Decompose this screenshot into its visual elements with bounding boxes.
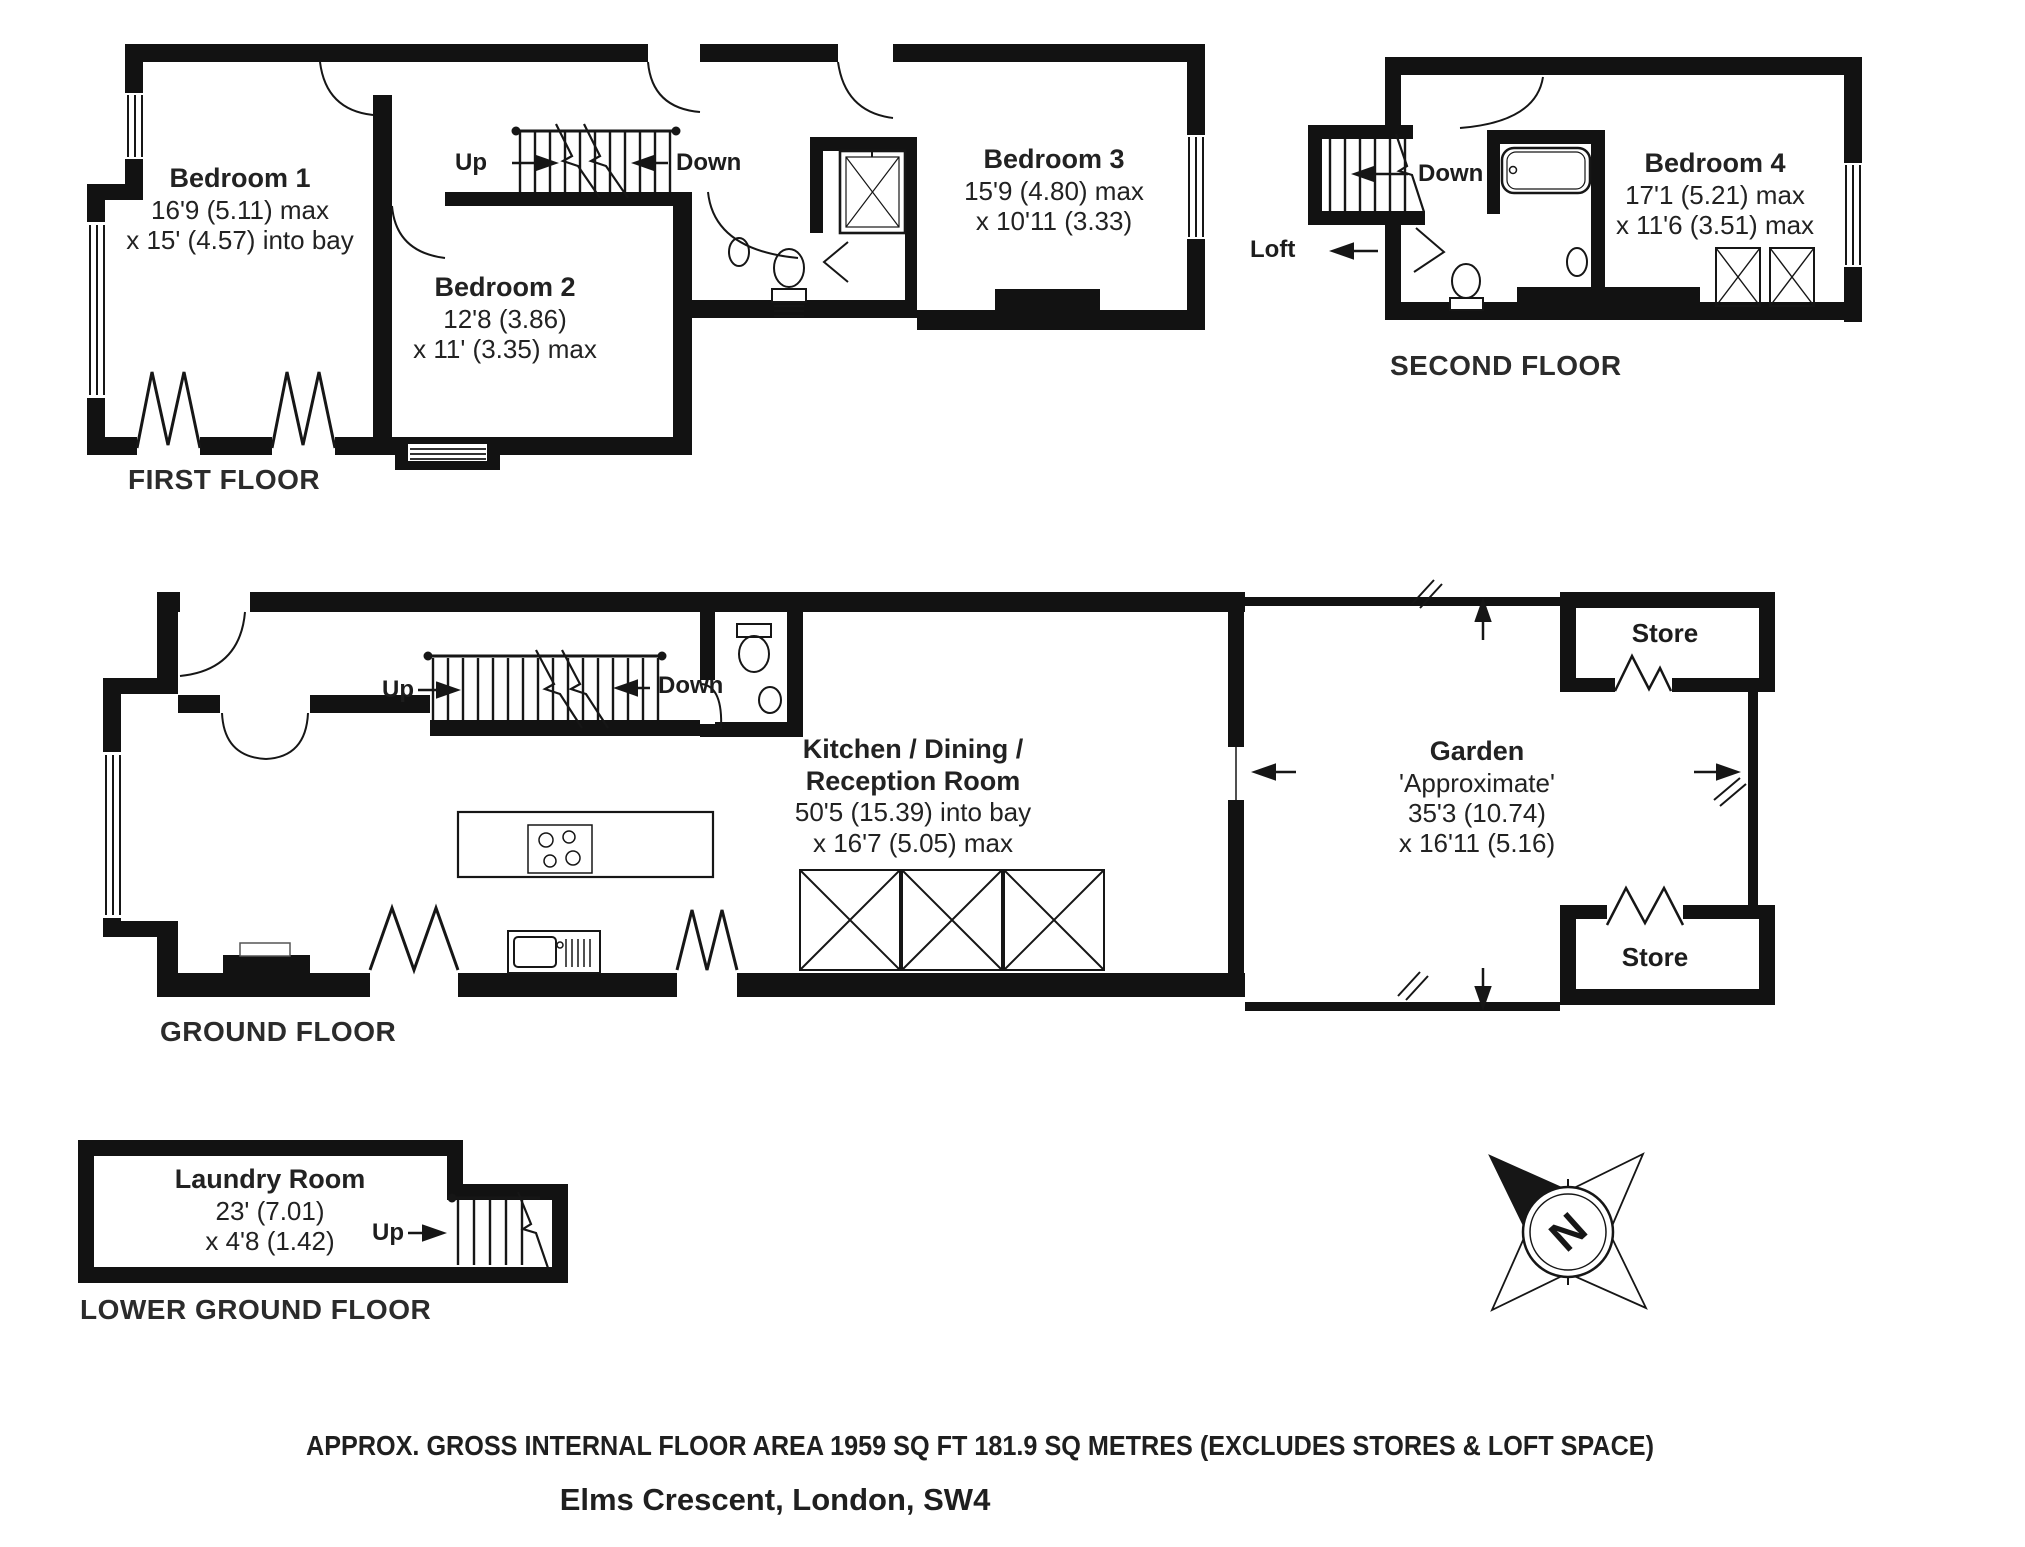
hearth bbox=[240, 943, 290, 956]
room-dim: 50'5 (15.39) into bay bbox=[788, 797, 1038, 827]
room-dim: x 11' (3.35) max bbox=[390, 334, 620, 364]
stairs-down-label: Down bbox=[676, 149, 741, 177]
lower-ground-details bbox=[408, 1192, 548, 1268]
room-name: Reception Room bbox=[788, 766, 1038, 798]
stairs-up-label: Up bbox=[382, 676, 414, 704]
toilet-icon bbox=[1450, 264, 1483, 310]
bay-window-icon bbox=[137, 372, 200, 448]
room-dim: x 4'8 (1.42) bbox=[150, 1226, 390, 1256]
room-name: Kitchen / Dining / bbox=[788, 734, 1038, 766]
kitchen-sink-icon bbox=[508, 931, 600, 973]
bathtub-icon bbox=[1502, 148, 1590, 193]
room-dim: x 10'11 (3.33) bbox=[928, 206, 1180, 236]
bay-window-icon bbox=[272, 372, 335, 448]
stairs-up-label: Up bbox=[455, 149, 487, 177]
first-floor-details bbox=[90, 62, 1203, 459]
room-dim: 16'9 (5.11) max bbox=[95, 195, 385, 225]
toilet-icon bbox=[772, 249, 806, 316]
ground-floor-openings bbox=[101, 680, 715, 918]
room-dim: x 16'7 (5.05) max bbox=[788, 828, 1038, 858]
shower-icon bbox=[840, 151, 905, 233]
floor-title-second: SECOND FLOOR bbox=[1390, 350, 1622, 382]
room-label-bedroom1: Bedroom 1 16'9 (5.11) max x 15' (4.57) i… bbox=[95, 163, 385, 255]
stairs-down-label: Down bbox=[1418, 160, 1483, 188]
room-name: Bedroom 2 bbox=[390, 272, 620, 304]
room-dim: 12'8 (3.86) bbox=[390, 304, 620, 334]
room-label-bedroom4: Bedroom 4 17'1 (5.21) max x 11'6 (3.51) … bbox=[1590, 148, 1840, 240]
room-dim: 23' (7.01) bbox=[150, 1196, 390, 1226]
room-dim: x 16'11 (5.16) bbox=[1352, 828, 1602, 858]
floor-title-ground: GROUND FLOOR bbox=[160, 1016, 396, 1048]
store-door-icon bbox=[1615, 656, 1671, 691]
footer-area-text: APPROX. GROSS INTERNAL FLOOR AREA 1959 S… bbox=[278, 1430, 1682, 1462]
room-dim: 17'1 (5.21) max bbox=[1590, 180, 1840, 210]
room-label-bedroom2: Bedroom 2 12'8 (3.86) x 11' (3.35) max bbox=[390, 272, 620, 364]
sink-icon bbox=[1567, 248, 1587, 276]
room-dim: x 15' (4.57) into bay bbox=[95, 225, 385, 255]
room-label-kitchen: Kitchen / Dining / Reception Room 50'5 (… bbox=[788, 734, 1038, 858]
stairs-down-label: Down bbox=[658, 672, 723, 700]
first-floor-plan bbox=[85, 44, 1207, 470]
rooflight-panels bbox=[800, 870, 1104, 970]
room-label-bedroom3: Bedroom 3 15'9 (4.80) max x 10'11 (3.33) bbox=[928, 144, 1180, 236]
compass-rose-icon: N bbox=[1490, 1154, 1646, 1310]
room-name: Garden bbox=[1352, 736, 1602, 768]
first-floor-walls bbox=[87, 44, 1205, 470]
floor-title-lower-ground: LOWER GROUND FLOOR bbox=[80, 1294, 431, 1326]
floorplan-page: N Bedroom 1 16'9 (5.11) max x 15' (4.57)… bbox=[0, 0, 2025, 1547]
room-name: Laundry Room bbox=[150, 1164, 390, 1196]
room-name: Bedroom 4 bbox=[1590, 148, 1840, 180]
french-doors-icon bbox=[370, 908, 458, 970]
french-doors-icon bbox=[677, 910, 737, 970]
first-floor-stairs bbox=[512, 124, 680, 198]
floor-title-first: FIRST FLOOR bbox=[128, 464, 320, 496]
room-note: 'Approximate' bbox=[1352, 768, 1602, 798]
store-label-bottom: Store bbox=[1585, 942, 1725, 973]
room-dim: 15'9 (4.80) max bbox=[928, 176, 1180, 206]
room-label-garden: Garden 'Approximate' 35'3 (10.74) x 16'1… bbox=[1352, 736, 1602, 859]
store-label-top: Store bbox=[1595, 618, 1735, 649]
room-name: Bedroom 1 bbox=[95, 163, 385, 195]
lower-ground-stairs bbox=[448, 1192, 548, 1268]
stairs-up-label: Up bbox=[372, 1219, 404, 1247]
room-label-laundry: Laundry Room 23' (7.01) x 4'8 (1.42) bbox=[150, 1164, 390, 1256]
room-dim: x 11'6 (3.51) max bbox=[1590, 210, 1840, 240]
kitchen-island bbox=[458, 812, 713, 877]
wardrobe-icon bbox=[1716, 248, 1814, 306]
sink-icon bbox=[759, 687, 781, 713]
toilet-icon bbox=[737, 624, 771, 672]
room-dim: 35'3 (10.74) bbox=[1352, 798, 1602, 828]
footer-address-text: Elms Crescent, London, SW4 bbox=[295, 1482, 1255, 1518]
loft-label: Loft bbox=[1250, 236, 1295, 264]
store-door-icon bbox=[1607, 888, 1683, 925]
room-name: Bedroom 3 bbox=[928, 144, 1180, 176]
